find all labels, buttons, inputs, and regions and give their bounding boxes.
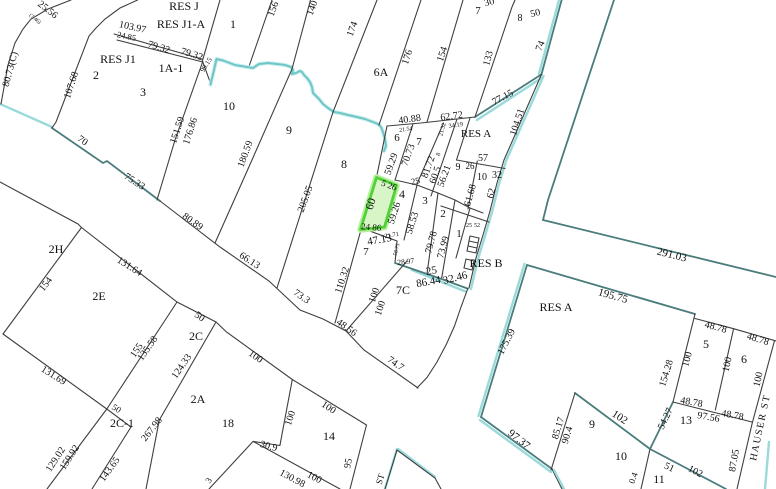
svg-text:24 86: 24 86 [361, 221, 383, 233]
svg-text:52: 52 [474, 223, 480, 229]
svg-text:3: 3 [422, 195, 428, 207]
svg-text:8: 8 [341, 157, 347, 171]
svg-text:7: 7 [475, 5, 481, 17]
svg-text:1A-1: 1A-1 [159, 61, 184, 75]
svg-text:11: 11 [653, 472, 665, 486]
svg-text:8: 8 [518, 13, 523, 24]
svg-text:RES J1-A: RES J1-A [157, 17, 206, 31]
svg-text:13: 13 [680, 413, 692, 427]
svg-text:2A: 2A [191, 392, 206, 406]
svg-text:RES B: RES B [469, 256, 502, 270]
svg-text:3: 3 [140, 85, 146, 99]
svg-text:2H: 2H [49, 242, 64, 256]
svg-text:10: 10 [223, 99, 235, 113]
svg-text:10: 10 [477, 172, 487, 183]
svg-text:28.97: 28.97 [397, 256, 415, 267]
svg-text:RES A: RES A [461, 128, 491, 140]
svg-text:RES J1: RES J1 [100, 52, 136, 66]
svg-text:6A: 6A [374, 65, 389, 79]
svg-text:RES A: RES A [539, 300, 572, 314]
svg-text:1: 1 [456, 228, 462, 240]
svg-text:14: 14 [323, 429, 335, 443]
svg-text:9: 9 [456, 162, 461, 173]
svg-text:1: 1 [230, 17, 236, 31]
svg-text:32: 32 [492, 170, 502, 181]
svg-text:7: 7 [363, 246, 369, 258]
svg-text:25: 25 [466, 223, 472, 229]
svg-text:2: 2 [440, 208, 446, 220]
svg-text:2: 2 [93, 68, 99, 82]
svg-text:57: 57 [478, 153, 488, 164]
svg-text:4: 4 [399, 187, 405, 201]
svg-text:10: 10 [615, 449, 627, 463]
svg-text:9: 9 [286, 123, 292, 137]
svg-text:2E: 2E [92, 289, 105, 303]
svg-text:26: 26 [466, 161, 476, 171]
svg-text:2C-1: 2C-1 [110, 416, 134, 430]
svg-text:9: 9 [589, 417, 595, 431]
svg-text:6: 6 [741, 352, 747, 366]
svg-text:RES J: RES J [169, 0, 199, 13]
svg-text:7: 7 [416, 136, 422, 148]
svg-text:6: 6 [394, 132, 400, 144]
svg-text:7C: 7C [396, 283, 410, 297]
svg-text:5: 5 [703, 337, 709, 351]
svg-text:2C: 2C [189, 329, 203, 343]
svg-text:18: 18 [222, 416, 234, 430]
